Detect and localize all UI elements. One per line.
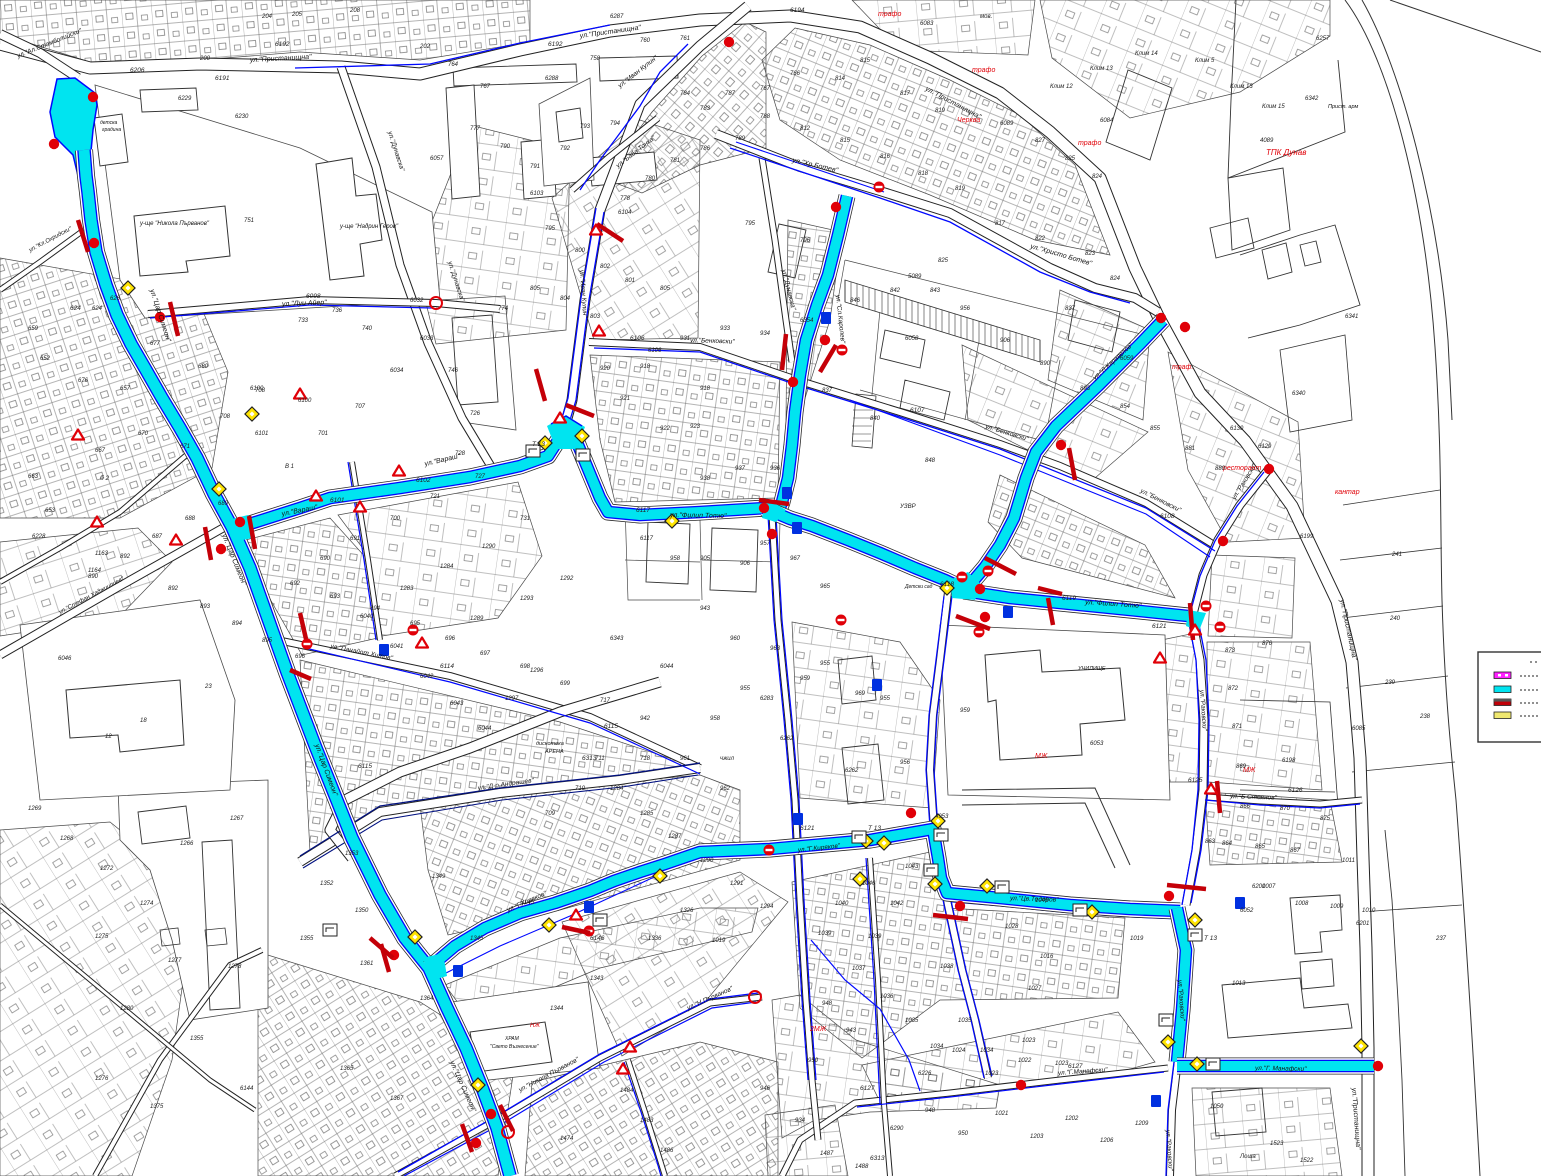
- svg-text:6262: 6262: [845, 768, 859, 774]
- svg-text:1040: 1040: [835, 901, 849, 907]
- svg-text:671: 671: [180, 444, 190, 450]
- svg-text:709: 709: [545, 811, 556, 817]
- svg-text:804: 804: [560, 296, 571, 302]
- svg-text:942: 942: [640, 716, 651, 722]
- svg-text:1011: 1011: [1342, 858, 1355, 864]
- svg-text:ул."Г. Манафски": ул."Г. Манафски": [1254, 1065, 1307, 1073]
- svg-text:689: 689: [218, 501, 229, 507]
- svg-text:6126: 6126: [1288, 787, 1303, 794]
- svg-text:6228: 6228: [32, 534, 46, 540]
- svg-text:956: 956: [900, 760, 911, 766]
- svg-text:950: 950: [808, 1058, 819, 1064]
- svg-text:866: 866: [1240, 804, 1251, 810]
- svg-text:1024: 1024: [952, 1048, 966, 1054]
- svg-text:767: 767: [480, 84, 491, 90]
- svg-text:6046: 6046: [58, 656, 72, 662]
- svg-text:733: 733: [298, 318, 309, 324]
- svg-text:1367: 1367: [390, 1096, 404, 1102]
- svg-text:659: 659: [28, 326, 39, 332]
- svg-text:934: 934: [795, 1118, 806, 1124]
- svg-text:ХРАМ: ХРАМ: [504, 1036, 520, 1042]
- svg-text:6041: 6041: [390, 644, 403, 650]
- svg-text:1268: 1268: [60, 836, 74, 842]
- svg-text:690: 690: [320, 556, 331, 562]
- svg-text:731: 731: [520, 516, 530, 522]
- svg-text:1269: 1269: [28, 806, 42, 812]
- svg-text:825: 825: [1065, 156, 1076, 162]
- svg-text:767: 767: [760, 86, 771, 92]
- svg-text:6032: 6032: [410, 298, 424, 304]
- svg-text:УЧИЛИЩЕ: УЧИЛИЩЕ: [1077, 666, 1106, 672]
- svg-text:931: 931: [680, 336, 690, 342]
- svg-text:1284: 1284: [610, 786, 624, 792]
- svg-text:1163: 1163: [95, 551, 109, 557]
- svg-text:708: 708: [220, 414, 231, 420]
- svg-text:801: 801: [625, 278, 635, 284]
- svg-text:943: 943: [846, 1028, 857, 1034]
- svg-text:у-ще "Никола Първанов": у-ще "Никола Първанов": [139, 221, 210, 227]
- svg-text:1488: 1488: [855, 1164, 869, 1170]
- svg-text:717: 717: [600, 698, 611, 704]
- svg-text:Клим 5: Клим 5: [1195, 58, 1215, 64]
- svg-text:815: 815: [860, 58, 871, 64]
- svg-text:895: 895: [262, 638, 273, 644]
- svg-text:240: 240: [1389, 616, 1401, 622]
- svg-text:872: 872: [1228, 686, 1239, 692]
- svg-text:трафо: трафо: [878, 11, 901, 18]
- svg-text:1278: 1278: [228, 964, 242, 970]
- svg-text:780: 780: [645, 176, 656, 182]
- svg-text:1289: 1289: [470, 616, 484, 622]
- svg-text:881: 881: [1185, 446, 1195, 452]
- svg-text:680: 680: [198, 364, 209, 370]
- svg-text:921: 921: [620, 396, 630, 402]
- svg-text:788: 788: [760, 114, 771, 120]
- svg-text:1039: 1039: [868, 934, 882, 940]
- svg-text:1023: 1023: [1022, 1038, 1036, 1044]
- svg-text:688: 688: [185, 516, 196, 522]
- svg-text:1290: 1290: [482, 544, 496, 550]
- svg-text:854: 854: [1120, 404, 1131, 410]
- svg-text:1364: 1364: [420, 996, 434, 1002]
- svg-text:1013: 1013: [1232, 981, 1246, 987]
- svg-text:градина: градина: [102, 127, 121, 133]
- svg-text:805: 805: [530, 286, 541, 292]
- svg-text:трафо: трафо: [972, 67, 995, 74]
- svg-text:204: 204: [261, 14, 273, 20]
- svg-text:6287: 6287: [610, 14, 624, 20]
- svg-text:707: 707: [355, 404, 366, 410]
- svg-text:626: 626: [110, 296, 121, 302]
- svg-text:237: 237: [1435, 936, 1447, 942]
- svg-text:920: 920: [600, 366, 611, 372]
- svg-text:6102: 6102: [416, 477, 431, 484]
- svg-text:778: 778: [620, 196, 631, 202]
- svg-text:6043: 6043: [450, 701, 464, 707]
- svg-text:6290: 6290: [890, 1126, 904, 1132]
- svg-text:873: 873: [1225, 648, 1236, 654]
- svg-text:958: 958: [670, 556, 681, 562]
- svg-text:Клим 14: Клим 14: [1135, 51, 1158, 57]
- svg-text:777: 777: [470, 126, 481, 132]
- svg-text:6089: 6089: [1000, 121, 1014, 127]
- svg-text:1486: 1486: [660, 1148, 674, 1154]
- svg-text:1266: 1266: [180, 841, 194, 847]
- svg-text:824: 824: [1092, 174, 1103, 180]
- svg-text:1353: 1353: [345, 851, 359, 857]
- svg-text:1283: 1283: [400, 586, 414, 592]
- svg-text:837: 837: [1065, 306, 1076, 312]
- svg-text:793: 793: [580, 124, 591, 130]
- svg-text:936: 936: [770, 466, 781, 472]
- svg-text:6343: 6343: [610, 636, 624, 642]
- svg-text:893: 893: [200, 604, 211, 610]
- svg-text:760: 760: [640, 38, 651, 44]
- svg-text:6114: 6114: [440, 663, 454, 670]
- svg-text:6059: 6059: [1120, 356, 1134, 362]
- svg-text:18: 18: [140, 718, 147, 724]
- svg-text:761: 761: [680, 36, 690, 42]
- svg-text:мов.: мов.: [980, 14, 992, 20]
- svg-text:794: 794: [610, 121, 621, 127]
- svg-text:721: 721: [430, 494, 440, 500]
- svg-text:205: 205: [291, 12, 303, 18]
- svg-text:1008: 1008: [1295, 901, 1309, 907]
- svg-text:876: 876: [1262, 641, 1273, 647]
- svg-text:699: 699: [560, 681, 571, 687]
- svg-text:б 2: б 2: [100, 474, 109, 482]
- svg-text:6129: 6129: [1258, 444, 1272, 450]
- svg-text:1274: 1274: [140, 901, 154, 907]
- svg-text:у-ще "Надрин Геров": у-ще "Надрин Геров": [339, 224, 399, 230]
- svg-text:Т 13: Т 13: [532, 441, 545, 448]
- svg-text:890: 890: [88, 574, 99, 580]
- svg-text:208: 208: [349, 8, 361, 14]
- svg-text:948: 948: [925, 1108, 936, 1114]
- svg-text:789: 789: [735, 136, 746, 142]
- svg-text:НЖ: НЖ: [530, 1023, 540, 1029]
- svg-text:663: 663: [28, 474, 39, 480]
- svg-text:786: 786: [700, 146, 711, 152]
- svg-text:Детски сад: Детски сад: [904, 584, 933, 590]
- svg-text:1294: 1294: [760, 904, 774, 910]
- svg-text:6127: 6127: [860, 1085, 875, 1092]
- svg-text:1037: 1037: [852, 966, 866, 972]
- svg-text:6121: 6121: [1152, 623, 1167, 630]
- svg-text:1344: 1344: [550, 1006, 564, 1012]
- svg-text:1039: 1039: [818, 931, 832, 937]
- svg-text:937: 937: [735, 466, 746, 472]
- svg-text:6130: 6130: [1230, 426, 1244, 432]
- svg-text:кантар: кантар: [1335, 489, 1360, 496]
- svg-text:764: 764: [448, 62, 459, 68]
- svg-text:6206: 6206: [130, 67, 145, 74]
- svg-text:955: 955: [880, 696, 891, 702]
- svg-text:863: 863: [1205, 839, 1216, 845]
- svg-text:1355: 1355: [300, 936, 314, 942]
- svg-text:1267: 1267: [230, 816, 244, 822]
- svg-text:1021: 1021: [995, 1111, 1008, 1117]
- svg-text:1292: 1292: [560, 576, 574, 582]
- svg-text:241: 241: [1391, 552, 1402, 558]
- svg-text:1296: 1296: [530, 668, 544, 674]
- svg-text:6104: 6104: [618, 210, 632, 216]
- svg-text:1375: 1375: [150, 1104, 164, 1110]
- svg-text:1290: 1290: [700, 858, 714, 864]
- svg-text:766: 766: [790, 71, 801, 77]
- svg-text:652: 652: [40, 356, 51, 362]
- svg-text:1350: 1350: [355, 908, 369, 914]
- svg-text:Клим 13: Клим 13: [1230, 84, 1253, 90]
- svg-text:1036: 1036: [880, 994, 894, 1000]
- svg-text:962: 962: [720, 786, 731, 792]
- svg-text:23: 23: [204, 684, 212, 690]
- svg-text:825: 825: [938, 258, 949, 264]
- svg-text:961: 961: [680, 756, 690, 762]
- svg-text:4089: 4089: [1260, 138, 1274, 144]
- svg-text:865: 865: [1255, 844, 1266, 850]
- svg-text:867: 867: [1290, 848, 1301, 854]
- svg-text:800: 800: [575, 248, 586, 254]
- svg-text:1343: 1343: [590, 976, 604, 982]
- svg-text:6257: 6257: [1316, 36, 1330, 42]
- svg-text:871: 871: [1232, 724, 1242, 730]
- svg-text:701: 701: [318, 431, 328, 437]
- svg-text:677: 677: [150, 341, 161, 347]
- svg-text:815: 815: [840, 138, 851, 144]
- svg-text:694: 694: [370, 606, 381, 612]
- svg-text:958: 958: [710, 716, 721, 722]
- svg-text:1345: 1345: [470, 936, 484, 942]
- svg-text:Прист. арм: Прист. арм: [1328, 104, 1358, 110]
- svg-text:6226: 6226: [918, 1071, 932, 1077]
- svg-text:1291: 1291: [730, 881, 743, 887]
- svg-text:687: 687: [152, 534, 163, 540]
- svg-text:967: 967: [790, 556, 801, 562]
- svg-text:736: 736: [332, 308, 343, 314]
- svg-text:792: 792: [560, 146, 571, 152]
- svg-text:6106: 6106: [630, 335, 645, 342]
- svg-text:918: 918: [700, 386, 711, 392]
- svg-text:1352: 1352: [320, 881, 334, 887]
- svg-text:6034: 6034: [390, 368, 404, 374]
- svg-text:960: 960: [730, 636, 741, 642]
- svg-text:827: 827: [1035, 138, 1046, 144]
- svg-text:6115: 6115: [358, 763, 372, 770]
- svg-text:1034: 1034: [980, 1048, 994, 1054]
- svg-text:840: 840: [870, 416, 881, 422]
- svg-text:1038: 1038: [940, 964, 954, 970]
- svg-text:1019: 1019: [712, 938, 726, 944]
- svg-text:751: 751: [244, 218, 254, 224]
- svg-text:1285: 1285: [640, 811, 654, 817]
- svg-text:6042: 6042: [420, 674, 434, 680]
- svg-text:774: 774: [498, 306, 509, 312]
- svg-text:676: 676: [78, 378, 89, 384]
- svg-text:823: 823: [1085, 251, 1096, 257]
- svg-text:670: 670: [138, 431, 149, 437]
- svg-text:ресторант: ресторант: [1222, 465, 1261, 472]
- svg-text:816: 816: [880, 154, 891, 160]
- svg-text:1023: 1023: [1055, 1061, 1069, 1067]
- svg-text:846: 846: [850, 298, 861, 304]
- svg-text:880: 880: [1215, 466, 1226, 472]
- svg-text:6340: 6340: [1292, 391, 1306, 397]
- svg-text:692: 692: [290, 581, 301, 587]
- svg-text:727: 727: [475, 474, 486, 480]
- svg-text:918: 918: [640, 364, 651, 370]
- svg-text:1019: 1019: [1130, 936, 1144, 942]
- svg-text:6058: 6058: [905, 336, 919, 342]
- svg-text:6100: 6100: [250, 386, 264, 392]
- svg-text:718: 718: [640, 756, 651, 762]
- svg-text:1272: 1272: [100, 866, 114, 872]
- svg-text:6083: 6083: [920, 21, 934, 27]
- svg-text:893: 893: [1080, 386, 1091, 392]
- svg-text:892: 892: [168, 586, 179, 592]
- svg-text:963: 963: [770, 646, 781, 652]
- svg-text:781: 781: [670, 158, 680, 164]
- svg-text:5089: 5089: [908, 274, 922, 280]
- svg-text:6100: 6100: [298, 398, 312, 404]
- svg-text:6107: 6107: [910, 407, 925, 414]
- svg-text:6121: 6121: [800, 825, 815, 832]
- svg-text:864: 864: [1222, 841, 1233, 847]
- svg-text:814: 814: [835, 76, 846, 82]
- svg-text:906: 906: [1000, 338, 1011, 344]
- svg-text:2МЖ: 2МЖ: [809, 1026, 827, 1033]
- svg-text:1035: 1035: [905, 1018, 919, 1024]
- svg-text:1022: 1022: [1018, 1058, 1032, 1064]
- svg-text:1042: 1042: [890, 901, 904, 907]
- svg-text:624: 624: [70, 305, 81, 312]
- svg-text:1336: 1336: [648, 936, 662, 942]
- svg-text:6262: 6262: [780, 736, 794, 742]
- svg-text:955: 955: [740, 686, 751, 692]
- svg-text:819: 819: [955, 186, 966, 192]
- svg-text:"Свето Възнесение": "Свето Възнесение": [490, 1044, 539, 1050]
- svg-text:Черква: Черква: [957, 117, 980, 124]
- svg-text:805: 805: [660, 286, 671, 292]
- svg-text:6053: 6053: [1090, 741, 1104, 747]
- svg-text:6115: 6115: [604, 723, 618, 730]
- svg-text:965: 965: [820, 584, 831, 590]
- svg-text:726: 726: [470, 411, 481, 417]
- svg-text:696: 696: [445, 636, 456, 642]
- svg-text:6192: 6192: [548, 41, 563, 48]
- svg-text:6342: 6342: [1305, 96, 1319, 102]
- svg-text:Клим 12: Клим 12: [1050, 84, 1073, 90]
- svg-text:795: 795: [545, 226, 556, 232]
- svg-text:1474: 1474: [560, 1136, 574, 1142]
- svg-text:1009: 1009: [1330, 904, 1344, 910]
- svg-text:6201: 6201: [1356, 921, 1369, 927]
- svg-text:траф.: траф.: [1172, 364, 1193, 371]
- svg-text:1045: 1045: [1035, 898, 1049, 904]
- svg-text:959: 959: [800, 676, 811, 682]
- svg-text:624: 624: [92, 306, 103, 312]
- svg-text:803: 803: [590, 314, 601, 320]
- svg-text:653: 653: [45, 508, 56, 514]
- svg-text:1016: 1016: [1040, 954, 1054, 960]
- svg-text:4953: 4953: [935, 814, 949, 820]
- svg-text:746: 746: [448, 368, 459, 374]
- svg-text:812: 812: [800, 126, 811, 132]
- svg-text:6040: 6040: [360, 614, 374, 620]
- svg-text:1028: 1028: [1005, 924, 1019, 930]
- svg-text:6144: 6144: [240, 1086, 254, 1092]
- svg-text:657: 657: [120, 386, 131, 392]
- svg-text:1297: 1297: [505, 696, 519, 702]
- svg-text:6108: 6108: [1160, 513, 1175, 520]
- svg-text:1349: 1349: [432, 874, 446, 880]
- svg-text:6313: 6313: [582, 755, 597, 762]
- svg-text:6230: 6230: [235, 114, 249, 120]
- svg-text:6283: 6283: [760, 696, 774, 702]
- svg-text:787: 787: [725, 91, 736, 97]
- svg-text:890: 890: [1040, 361, 1051, 367]
- svg-text:6145: 6145: [520, 899, 535, 906]
- svg-text:ул."Филип Тотю": ул."Филип Тотю": [669, 512, 727, 520]
- svg-text:938: 938: [700, 476, 711, 482]
- svg-text:948: 948: [822, 1001, 833, 1007]
- svg-text:6118: 6118: [940, 581, 954, 588]
- svg-text:1007: 1007: [1262, 884, 1276, 890]
- svg-text:6199: 6199: [1300, 534, 1314, 540]
- svg-text:728: 728: [455, 451, 466, 457]
- svg-text:855: 855: [1150, 426, 1161, 432]
- svg-text:822: 822: [1035, 236, 1046, 242]
- svg-text:824: 824: [1110, 276, 1121, 282]
- svg-text:1206: 1206: [1100, 1138, 1114, 1144]
- svg-text:1284: 1284: [440, 564, 454, 570]
- svg-text:239: 239: [1384, 680, 1396, 686]
- svg-text:Лоша: Лоша: [1239, 1154, 1256, 1160]
- svg-text:819: 819: [935, 108, 946, 114]
- svg-text:6191: 6191: [215, 75, 230, 82]
- svg-text:6117: 6117: [636, 507, 650, 514]
- svg-text:693: 693: [330, 594, 341, 600]
- svg-text:6146: 6146: [590, 935, 605, 942]
- svg-text:740: 740: [362, 326, 373, 332]
- svg-text:6085: 6085: [1352, 726, 1366, 732]
- svg-text:1326: 1326: [680, 908, 694, 914]
- svg-text:943: 943: [700, 606, 711, 612]
- svg-text:6119: 6119: [1062, 595, 1076, 602]
- svg-text:1365: 1365: [340, 1066, 354, 1072]
- svg-text:870: 870: [1280, 806, 1291, 812]
- svg-text:906: 906: [740, 561, 751, 567]
- svg-text:6033: 6033: [420, 336, 434, 342]
- svg-text:969: 969: [855, 691, 866, 697]
- svg-text:837: 837: [822, 388, 833, 394]
- svg-text:817: 817: [900, 91, 911, 97]
- svg-text:1522: 1522: [1300, 1158, 1314, 1164]
- svg-text:697: 697: [480, 651, 491, 657]
- svg-text:6044: 6044: [478, 726, 492, 732]
- svg-text:В 1: В 1: [285, 464, 294, 470]
- svg-text:Т 13: Т 13: [1204, 935, 1217, 942]
- svg-text:1523: 1523: [1270, 1141, 1284, 1147]
- svg-text:1280: 1280: [120, 1006, 134, 1012]
- svg-text:696: 696: [295, 654, 306, 660]
- svg-text:6229: 6229: [178, 96, 192, 102]
- svg-text:1361: 1361: [360, 961, 373, 967]
- svg-text:1027: 1027: [1028, 986, 1042, 992]
- svg-text:202: 202: [419, 44, 431, 50]
- svg-text:238: 238: [1419, 714, 1431, 720]
- svg-text:1276: 1276: [95, 1076, 109, 1082]
